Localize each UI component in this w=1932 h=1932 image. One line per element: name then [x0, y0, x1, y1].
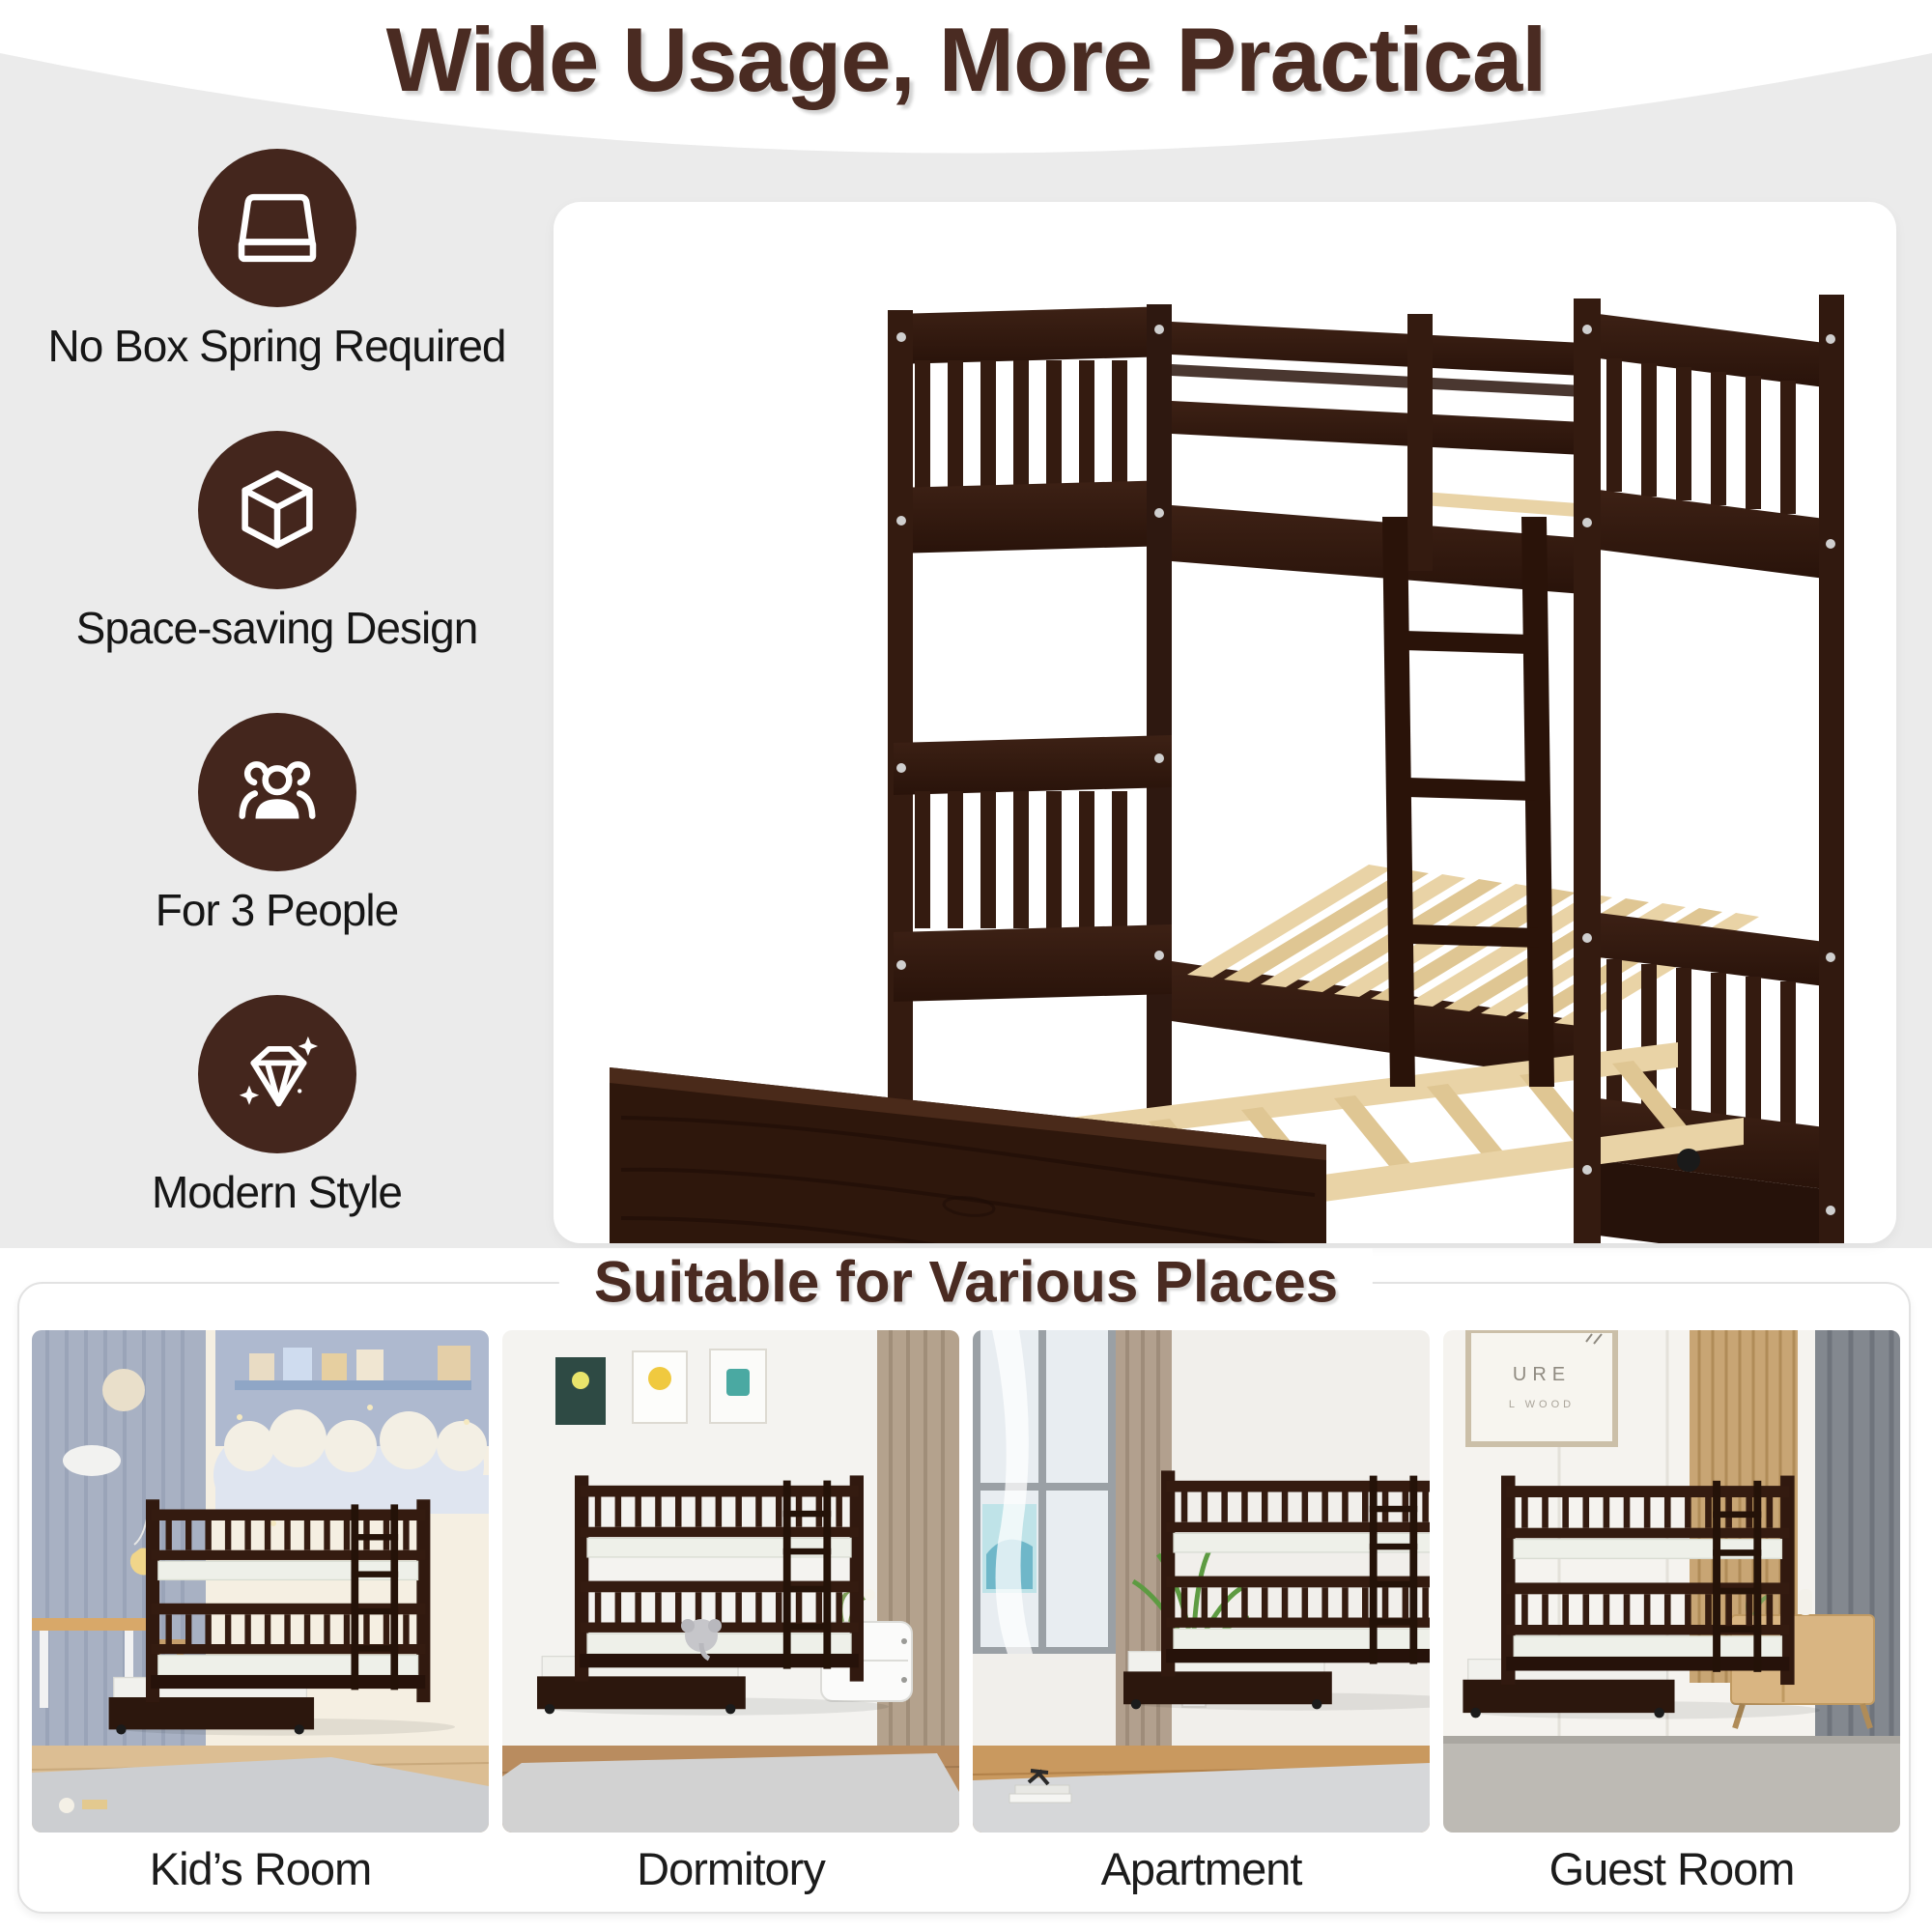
photo-dormitory — [502, 1330, 959, 1833]
feature-label: Modern Style — [152, 1167, 402, 1217]
people-icon — [198, 713, 356, 871]
feature-space-saving: Space-saving Design — [0, 431, 554, 653]
svg-text:L WOOD: L WOOD — [1509, 1399, 1575, 1410]
page-title: Wide Usage, More Practical — [0, 8, 1932, 112]
feature-label: No Box Spring Required — [47, 321, 505, 371]
cube-icon — [198, 431, 356, 589]
place-label-guest-room: Guest Room — [1443, 1842, 1900, 1895]
section-title: Suitable for Various Places — [559, 1249, 1373, 1316]
product-image-bunk-bed — [554, 202, 1896, 1243]
product-panel — [554, 202, 1896, 1243]
feature-label: For 3 People — [156, 885, 398, 935]
diamond-icon — [198, 995, 356, 1153]
places-panel: URE L WOOD Kid’s Room Dormitory Apartmen… — [17, 1282, 1911, 1914]
feature-label: Space-saving Design — [76, 603, 478, 653]
place-label-kids-room: Kid’s Room — [32, 1842, 489, 1895]
feature-for-3-people: For 3 People — [0, 713, 554, 935]
feature-no-box-spring: No Box Spring Required — [0, 149, 554, 371]
place-label-dormitory: Dormitory — [502, 1842, 959, 1895]
svg-text:URE: URE — [1513, 1364, 1571, 1385]
place-label-apartment: Apartment — [973, 1842, 1430, 1895]
photo-apartment — [973, 1330, 1430, 1833]
photo-guest-room: URE L WOOD — [1443, 1330, 1900, 1833]
photo-kids-room — [32, 1330, 489, 1833]
feature-modern-style: Modern Style — [0, 995, 554, 1217]
mattress-icon — [198, 149, 356, 307]
